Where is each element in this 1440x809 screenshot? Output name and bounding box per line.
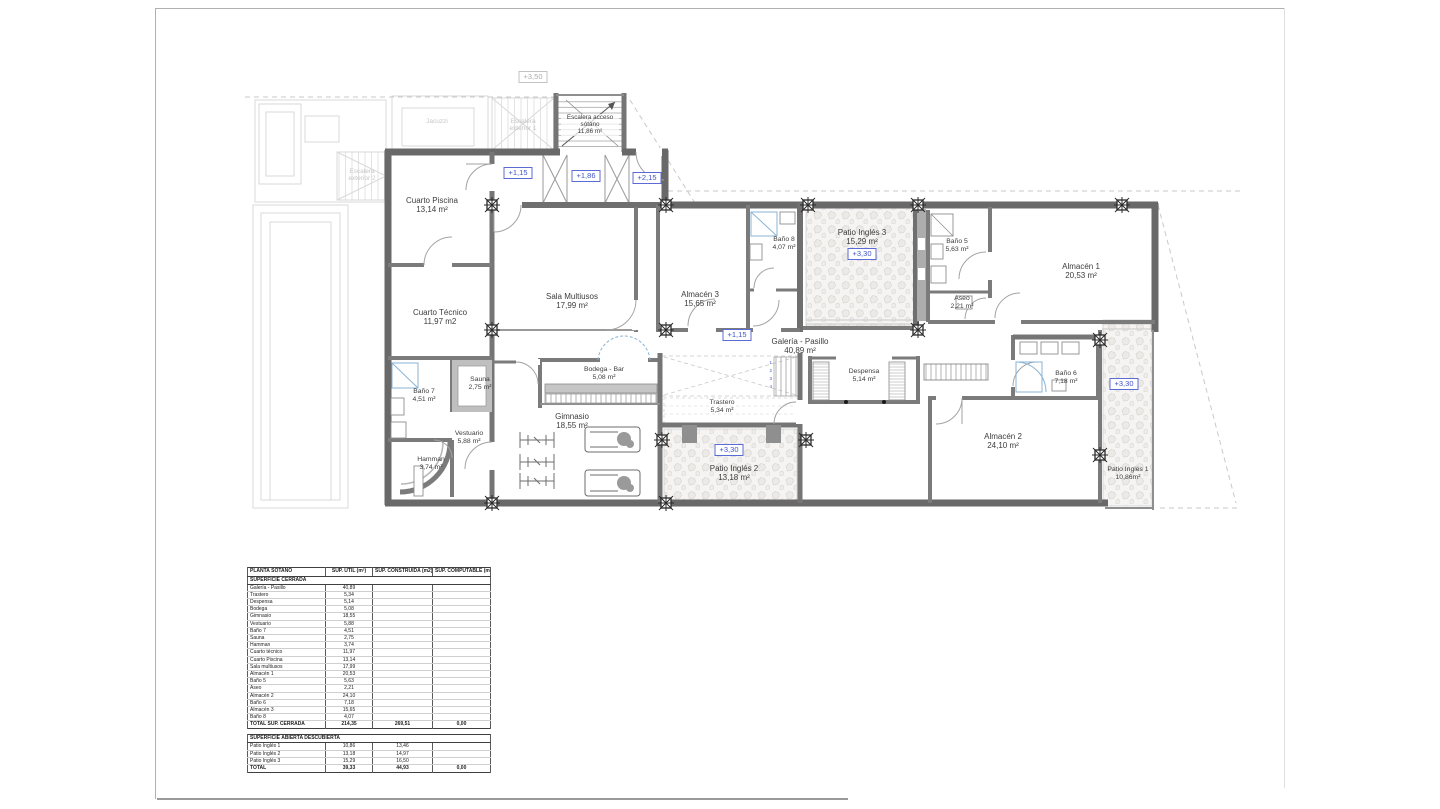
doors (424, 152, 1037, 469)
floor-plan-canvas: 1 2 3 4 (0, 0, 1440, 809)
col-header-construida: SUP. CONSTRUIDA (m2) (373, 568, 433, 577)
table-row: Cuarto Piscina13,14 (248, 656, 491, 663)
surface-table-closed: PLANTA SÓTANO SUP. ÚTIL (m²) SUP. CONSTR… (247, 567, 491, 729)
table-row: Sauna2,75 (248, 634, 491, 641)
table-row: Galería - Pasillo40,89 (248, 584, 491, 591)
table-row: Despensa5,14 (248, 598, 491, 605)
table-header-row: PLANTA SÓTANO SUP. ÚTIL (m²) SUP. CONSTR… (248, 568, 491, 577)
table-row: Baño 84,07 (248, 714, 491, 721)
table-row: Bodega5,08 (248, 606, 491, 613)
table-row: Baño 74,51 (248, 627, 491, 634)
drawing-sheet: 1 2 3 4 (0, 0, 1440, 809)
basement-access-stair (556, 93, 624, 152)
area-tables: PLANTA SÓTANO SUP. ÚTIL (m²) SUP. CONSTR… (247, 567, 490, 773)
table-row: Sala multiusos17,99 (248, 663, 491, 670)
section-header-abierta: SUPERFICIE ABIERTA DESCUBIERTA (248, 735, 491, 743)
table-row: Cuarto técnico11,97 (248, 649, 491, 656)
svg-text:1: 1 (769, 360, 772, 365)
table-row: Vestuario5,88 (248, 620, 491, 627)
stair-numbers: 1 2 3 4 (769, 360, 772, 389)
table-row: Baño 67,18 (248, 699, 491, 706)
table-row: Patio Inglés 110,8613,46 (248, 743, 491, 750)
table-row: Patio Inglés 315,2916,50 (248, 757, 491, 764)
col-header-util: SUP. ÚTIL (m²) (326, 568, 373, 577)
col-header-computable: SUP. COMPUTABLE (m2) (433, 568, 491, 577)
table-row: Almacén 120,53 (248, 670, 491, 677)
corridor-ramp-panels (543, 155, 629, 203)
total-row-abierta: TOTAL 39,33 44,93 0,00 (248, 764, 491, 772)
weight-bench (585, 427, 640, 496)
gym-equipment (520, 427, 640, 496)
svg-text:2: 2 (769, 368, 772, 373)
table-row: Patio Inglés 213,1814,97 (248, 750, 491, 757)
svg-text:3: 3 (769, 376, 772, 381)
table-row: Almacén 224,10 (248, 692, 491, 699)
col-header-planta: PLANTA SÓTANO (248, 568, 326, 577)
table-row: Aseo2,21 (248, 685, 491, 692)
table-row: Almacén 315,65 (248, 706, 491, 713)
total-row-cerrada: TOTAL SUP. CERRADA 214,35 269,51 0,00 (248, 721, 491, 729)
surface-table-open: SUPERFICIE ABIERTA DESCUBIERTA Patio Ing… (247, 734, 491, 773)
table-row: Gimnasio18,55 (248, 613, 491, 620)
section-header-cerrada: SUPERFICIE CERRADA (248, 576, 491, 584)
table-row: Hamman3,74 (248, 642, 491, 649)
background-upper-floor-outline (253, 96, 554, 508)
table-row: Trastero5,34 (248, 591, 491, 598)
table-row: Baño 55,63 (248, 678, 491, 685)
lower-stair-and-trastero-zone (662, 356, 798, 424)
barbell-rack (520, 432, 554, 489)
